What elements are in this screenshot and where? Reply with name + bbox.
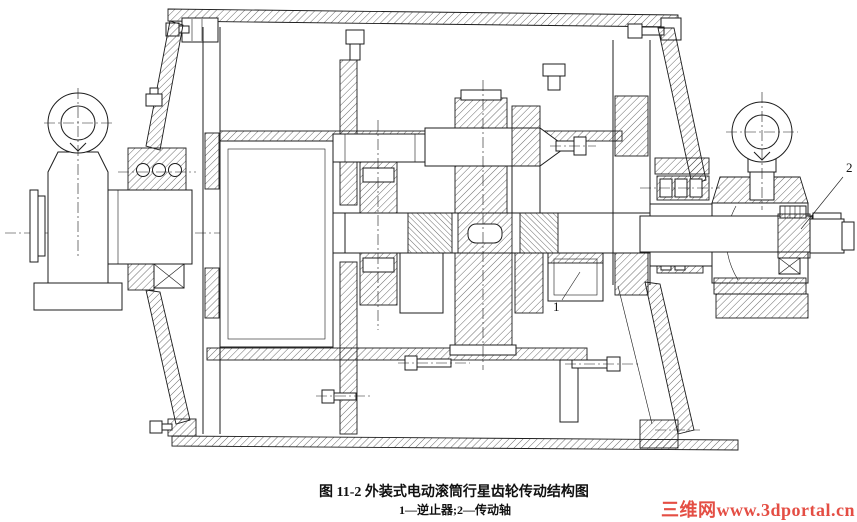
watermark: 三维网www.3dportal.cn bbox=[661, 499, 855, 520]
figure-legend: 1—逆止器;2—传动轴 bbox=[399, 502, 511, 517]
figure-page: 1 2 图 11-2 外装式电动滚筒行星齿轮传动结构图 1—逆止器;2—传动轴 … bbox=[0, 0, 857, 522]
main-shaft bbox=[333, 213, 668, 253]
figure-caption: 图 11-2 外装式电动滚筒行星齿轮传动结构图 bbox=[319, 483, 589, 500]
motor-block bbox=[220, 141, 333, 347]
left-lower-bearing-box bbox=[154, 264, 184, 288]
right-lower-bearing-box bbox=[779, 258, 800, 274]
callout-1-label: 1 bbox=[553, 299, 560, 314]
left-shaft bbox=[106, 190, 192, 264]
right-support bbox=[712, 92, 808, 318]
backstop bbox=[548, 253, 603, 301]
callout-2-label: 2 bbox=[846, 160, 853, 175]
technical-drawing: 1 2 图 11-2 外装式电动滚筒行星齿轮传动结构图 1—逆止器;2—传动轴 … bbox=[0, 0, 857, 522]
